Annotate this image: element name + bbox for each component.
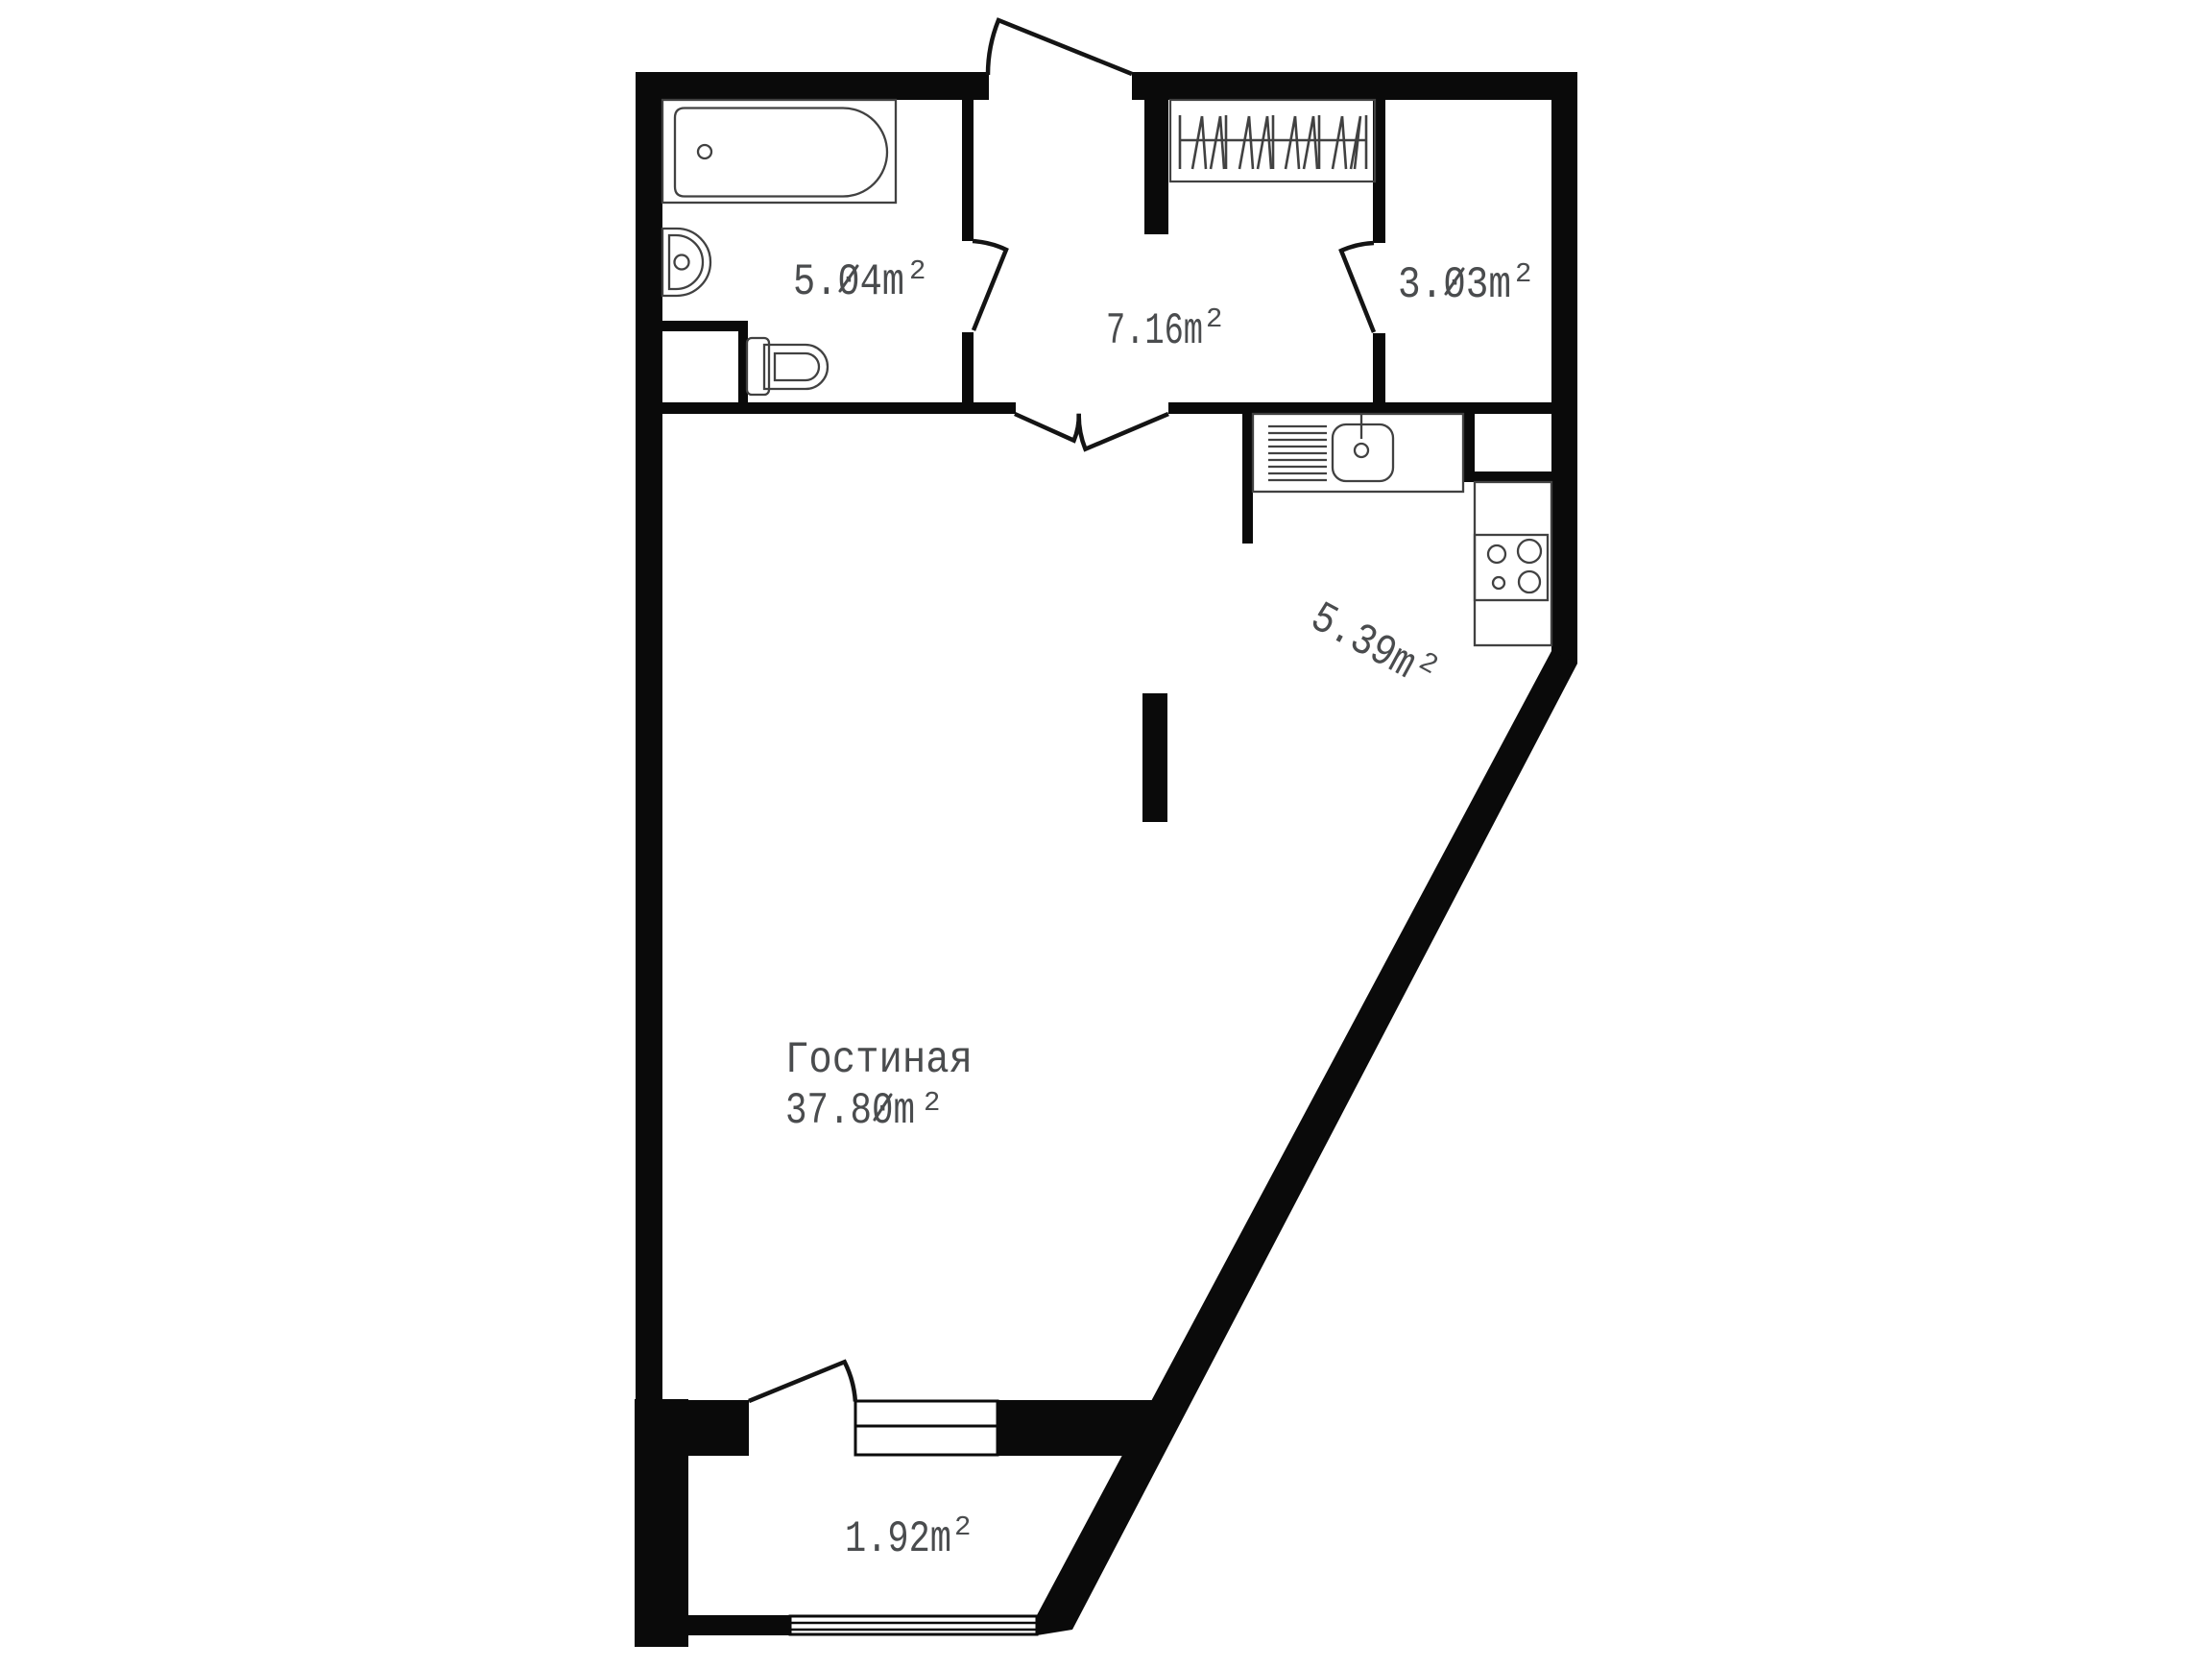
svg-text:7.16m: 7.16m	[1106, 306, 1203, 356]
svg-text:1.92m: 1.92m	[845, 1514, 951, 1564]
svg-text:2: 2	[1515, 258, 1531, 290]
svg-text:2: 2	[924, 1087, 940, 1119]
svg-text:37.80m: 37.80m	[785, 1086, 915, 1136]
svg-text:5.04m: 5.04m	[793, 257, 904, 307]
svg-text:2: 2	[1206, 303, 1222, 335]
svg-text:3.03m: 3.03m	[1398, 260, 1511, 310]
svg-text:2: 2	[954, 1511, 971, 1543]
svg-text:Гостиная: Гостиная	[785, 1035, 973, 1085]
svg-text:2: 2	[909, 255, 926, 287]
